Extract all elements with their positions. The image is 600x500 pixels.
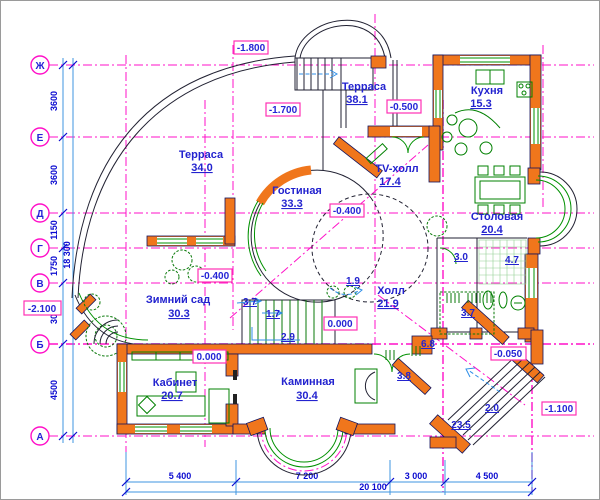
elevation-value: -0.400 [201, 271, 230, 282]
elevation-mark: 0.000 [324, 317, 357, 330]
axis-letter: Е [37, 133, 44, 144]
room-name: Зимний сад [146, 294, 210, 306]
floor-plan-canvas: Ж Е Д Г В Б А [0, 0, 600, 500]
elevation-mark: -1.700 [266, 103, 300, 116]
elevation-value: -2.100 [28, 304, 57, 315]
wall [531, 330, 543, 364]
elevation-mark: -1.100 [542, 402, 576, 415]
bidet-icon [499, 292, 507, 308]
floor-plan-drawing: Ж Е Д Г В Б А [0, 0, 600, 500]
elevation-mark: -0.400 [198, 269, 232, 282]
wall [429, 126, 440, 182]
elevation-mark: -0.050 [491, 347, 526, 360]
dim-left-6: 4500 [49, 380, 59, 400]
axis-bubble-e: Е [31, 128, 49, 146]
dim-bottom-1: 5 400 [169, 471, 192, 481]
room-area: 20.4 [481, 224, 503, 236]
room-area: 33.3 [281, 198, 302, 210]
wall [225, 198, 235, 244]
room-name: Кухня [471, 85, 503, 97]
room-name: Столовая [471, 211, 523, 223]
room-area: 17.4 [379, 176, 401, 188]
room-area: 30.4 [296, 390, 318, 402]
area-value: 1.9 [346, 276, 360, 287]
elevation-value: 0.000 [327, 319, 352, 330]
wall [528, 238, 540, 254]
elevation-value: -1.100 [545, 404, 574, 415]
room-area: 20.7 [161, 390, 182, 402]
door-jamb [233, 370, 237, 380]
room-area: 34.0 [191, 162, 212, 174]
dim-left-total: 18 300 [62, 241, 72, 269]
dim-left-1: 3600 [49, 91, 59, 111]
area-value: 6.8 [421, 339, 435, 350]
axis-bubble-zh: Ж [31, 56, 49, 74]
axis-bubble-a: А [31, 427, 49, 445]
area-value: 2.9 [281, 332, 295, 343]
area-value: 23.5 [451, 420, 471, 431]
axis-letter: Б [36, 340, 43, 351]
elevation-mark: -1.800 [234, 41, 268, 54]
room-name: Кабинет [153, 377, 198, 389]
dim-left-2: 3600 [49, 165, 59, 185]
wall [117, 424, 233, 434]
axis-bubble-g: Г [31, 239, 49, 257]
room-area: 30.3 [168, 308, 189, 320]
elevation-value: -1.800 [237, 43, 266, 54]
elevation-mark: -0.500 [387, 100, 421, 113]
area-value: 3.7 [461, 308, 475, 319]
area-value: 4.7 [505, 255, 519, 266]
wall [371, 56, 386, 68]
room-name: TV-холл [375, 163, 418, 175]
drawing-border [1, 1, 600, 500]
dim-left-3: 1150 [49, 220, 59, 240]
axis-bubble-v: В [31, 274, 49, 292]
axis-letter: В [36, 279, 43, 290]
dim-bottom-3: 3 000 [405, 471, 428, 481]
axis-letter: А [36, 432, 43, 443]
area-value: 3.8 [397, 371, 411, 382]
area-value: 1.7 [266, 309, 280, 320]
wall [470, 328, 482, 339]
fireplace [355, 369, 377, 403]
elevation-mark: 0.000 [193, 350, 226, 363]
room-name: Холл [377, 285, 405, 297]
elevation-value: 0.000 [196, 352, 221, 363]
room-area: 15.3 [470, 98, 491, 110]
area-value: 3.7 [243, 297, 257, 308]
elevation-mark: -0.400 [330, 204, 364, 217]
wall [430, 437, 456, 448]
elevation-value: -0.500 [390, 102, 419, 113]
dim-bottom-total: 20 100 [359, 482, 387, 492]
area-value: 2.0 [485, 403, 499, 414]
room-name: Гостиная [272, 185, 322, 197]
elevation-mark: -2.100 [24, 301, 61, 315]
axis-bubble-d: Д [31, 204, 49, 222]
room-name: Терраса [342, 81, 387, 93]
axis-letter: Ж [34, 61, 45, 72]
dim-bottom-4: 4 500 [476, 471, 499, 481]
room-name: Каминная [281, 376, 335, 388]
axis-letter: Г [37, 244, 43, 255]
room-area: 21.9 [377, 298, 398, 310]
elevation-value: -0.050 [494, 349, 523, 360]
room-area: 38.1 [346, 94, 367, 106]
elevation-value: -0.400 [333, 206, 362, 217]
dim-left-4: 1750 [49, 256, 59, 276]
axis-bubble-b: Б [31, 335, 49, 353]
room-name: Терраса [179, 149, 224, 161]
area-value: 3.0 [454, 252, 468, 263]
door-jamb [233, 394, 237, 404]
axis-letter: Д [36, 209, 43, 220]
elevation-value: -1.700 [269, 105, 298, 116]
dim-bottom-2: 7 200 [296, 471, 319, 481]
